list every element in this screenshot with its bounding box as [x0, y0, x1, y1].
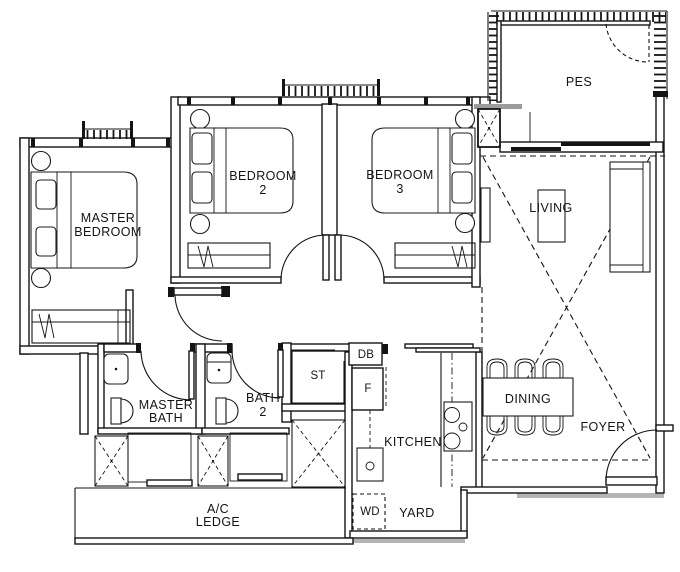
bedroom2-wardrobe — [188, 243, 270, 268]
bedroom2-furniture — [188, 110, 293, 269]
room-label-pes: PES — [566, 75, 592, 89]
pillow — [192, 133, 212, 164]
bedroom-divider-wall — [322, 104, 337, 235]
label-ac-ledge: LEDGE — [196, 515, 240, 529]
pillow — [452, 172, 472, 203]
master-bath-left-wall — [98, 344, 104, 432]
bedside-table — [191, 110, 210, 129]
sliding-door-panel — [561, 142, 650, 146]
right-exterior-wall — [656, 95, 664, 493]
bedroom3-door-leaf — [335, 235, 341, 280]
room-label-bedroom-3: 3 — [396, 182, 403, 196]
room-label-bedroom-2: BEDROOM — [229, 169, 296, 183]
pillow — [192, 172, 212, 203]
master-door-leaf — [174, 288, 222, 295]
bedside-table — [191, 215, 210, 234]
entrance-door-leaf — [606, 477, 657, 485]
toilet-icon — [111, 398, 133, 424]
right-wall-fin — [656, 425, 673, 431]
room-label-master-bedroom: MASTER — [81, 211, 136, 225]
master-bath-fixtures — [104, 354, 133, 424]
room-label-dining: DINING — [505, 392, 551, 406]
ac-unit — [292, 420, 345, 487]
living-furniture — [481, 162, 650, 272]
toilet-icon — [216, 398, 238, 424]
bath-divider-wall — [196, 344, 205, 434]
label-washer-dryer: WD — [360, 506, 380, 518]
room-label-bedroom-2: 2 — [259, 183, 266, 197]
room-label-master-bath: MASTER — [139, 398, 194, 412]
pes-gate-swing — [606, 24, 649, 62]
living-pes-wall — [474, 104, 663, 152]
sofa — [610, 162, 650, 272]
pillow — [452, 133, 472, 164]
label-store: ST — [310, 370, 325, 382]
label-fridge: F — [364, 383, 371, 395]
floor-plan-page: MASTER BEDROOM BEDROOM 2 BEDROOM 3 PES L… — [0, 0, 680, 572]
master-wardrobe — [32, 310, 130, 343]
ac-unit — [198, 436, 228, 486]
bedside-table — [456, 214, 475, 233]
bedroom2-door-swing — [281, 235, 326, 280]
bedroom3-furniture — [372, 110, 475, 269]
tv-console — [481, 188, 490, 242]
pillow — [36, 227, 56, 256]
master-bedroom-furniture — [31, 152, 137, 344]
bath2-door-leaf — [278, 350, 283, 397]
master-step-wall — [20, 346, 104, 354]
ledge-strip-wall — [80, 353, 88, 434]
sink-icon — [207, 353, 231, 383]
bedroom3-wardrobe — [395, 243, 475, 268]
entrance-door-swing — [606, 430, 657, 481]
master-top-wall — [20, 138, 179, 147]
bedroom2-bottom-wall — [171, 277, 281, 283]
room-label-yard: YARD — [399, 506, 434, 520]
label-ac-ledge: A/C — [207, 502, 229, 516]
store-bottom-wall — [282, 404, 352, 411]
bedside-table — [32, 269, 51, 288]
ac-unit — [95, 436, 128, 486]
room-label-master-bath: BATH — [149, 411, 183, 425]
coffee-table — [538, 190, 565, 242]
bedroom3-door-swing — [339, 235, 384, 280]
room-label-living: LIVING — [529, 201, 572, 215]
yard-right-wall — [461, 490, 467, 537]
master-door-swing — [175, 295, 222, 341]
bedside-table — [32, 152, 51, 171]
bedside-table — [456, 110, 475, 129]
hob-icon — [444, 402, 472, 451]
left-exterior-wall — [20, 138, 29, 354]
ledge-bottom-wall — [75, 538, 353, 544]
room-label-bedroom-3: BEDROOM — [366, 168, 433, 182]
room-label-foyer: FOYER — [580, 420, 625, 434]
kitchen-left-wall — [345, 352, 352, 538]
bottom-wall — [461, 487, 607, 493]
label-db: DB — [358, 349, 375, 361]
floor-plan: MASTER BEDROOM BEDROOM 2 BEDROOM 3 PES L… — [0, 0, 680, 572]
corridor-wall-a — [104, 344, 140, 352]
room-label-bath-2: BATH — [246, 391, 280, 405]
service-shaft — [478, 109, 500, 147]
master-bath-door-swing — [141, 351, 191, 400]
bedroom2-door-leaf — [323, 235, 329, 280]
yard-bottom-wall — [350, 531, 467, 538]
room-label-master-bedroom: BEDROOM — [74, 225, 141, 239]
room-label-kitchen: KITCHEN — [384, 435, 442, 449]
kitchen-right-wall — [476, 352, 482, 488]
kitchen-sink — [357, 448, 383, 481]
sliding-door-panel — [511, 147, 561, 151]
pillow — [36, 180, 56, 209]
bedroom2-left-wall — [171, 97, 180, 283]
master-bath-door-leaf — [189, 351, 194, 399]
bedroom3-bottom-wall — [384, 277, 480, 283]
room-label-bath-2: 2 — [259, 405, 266, 419]
